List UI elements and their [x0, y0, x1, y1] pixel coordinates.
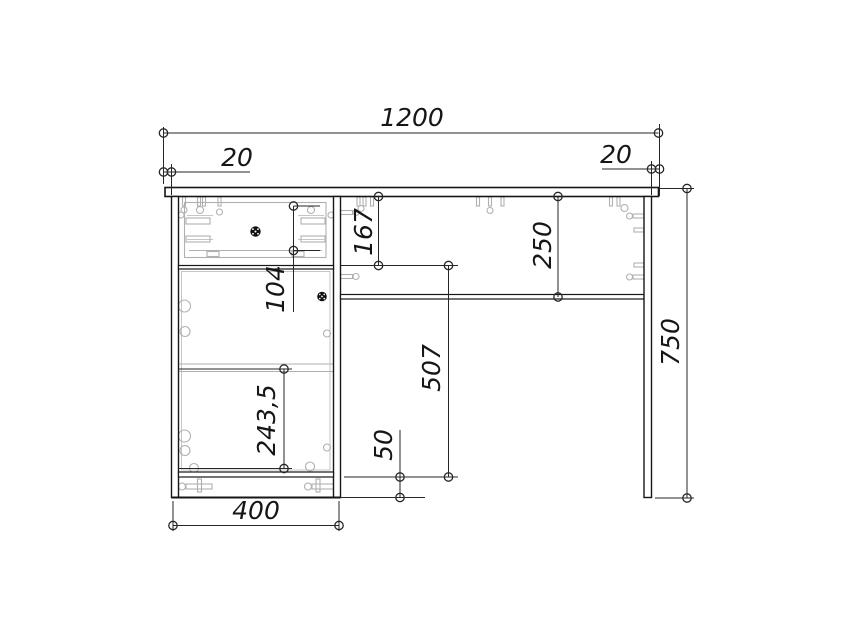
dim-total-height: 750: [655, 184, 694, 502]
dim-drawer-section-height: 167: [341, 192, 459, 269]
door-knob-icon: [317, 292, 327, 302]
dim-door-panel-height-label: 243,5: [252, 384, 281, 456]
desk-leg-panel: [644, 197, 652, 498]
dim-plinth-height-label: 50: [369, 429, 398, 461]
dim-door-panel-height: 243,5: [179, 365, 293, 473]
dim-plinth-height: 50: [341, 429, 426, 502]
hidden-hardware: [172, 189, 645, 492]
dim-pedestal-width-label: 400: [232, 496, 280, 525]
dim-total-height-label: 750: [656, 318, 685, 366]
pedestal-right-side: [334, 197, 341, 498]
hidden-shelf: [179, 364, 334, 372]
tabletop: [165, 188, 659, 197]
dim-drawer-inner-height-label: 104: [261, 265, 290, 313]
drawer-knob-icon: [250, 226, 260, 236]
desk-drawing: 1200 20 20 167 250 104: [0, 0, 856, 642]
pedestal-left-side: [172, 197, 179, 498]
dim-overhang-left-label: 20: [221, 143, 253, 172]
plinth-screws: [179, 479, 337, 492]
drawer-divider: [179, 266, 334, 270]
dim-overhang-right-label: 20: [600, 140, 632, 169]
dim-apron-height-label: 250: [528, 221, 557, 269]
dim-pedestal-width: 400: [169, 496, 343, 531]
support-rail: [341, 295, 645, 300]
structure: [165, 188, 659, 498]
dim-knee-clearance-label: 507: [417, 344, 446, 392]
dim-apron-height: 250: [528, 192, 562, 301]
leg-screws: [627, 213, 645, 280]
door-hinges: [172, 300, 331, 473]
dim-drawer-section-height-label: 167: [349, 208, 378, 256]
drawing-canvas: 1200 20 20 167 250 104: [0, 0, 856, 642]
dim-total-width-label: 1200: [380, 103, 444, 132]
pedestal-bottom-panel: [179, 472, 334, 477]
